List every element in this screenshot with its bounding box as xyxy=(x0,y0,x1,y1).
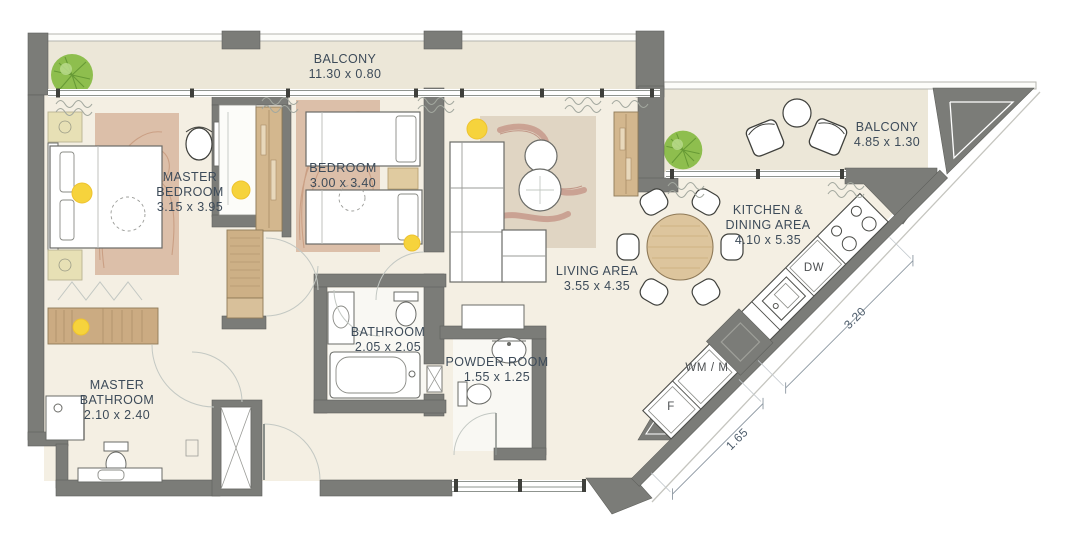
bathtub xyxy=(330,352,420,398)
room-name: BATHROOM xyxy=(80,393,155,408)
room-dims: 11.30 x 0.80 xyxy=(309,67,382,82)
balcony-table xyxy=(783,99,811,127)
room-label-master-bedroom: MASTER BEDROOM 3.15 x 3.95 xyxy=(156,170,223,215)
nightstand xyxy=(48,112,82,142)
fridge-label: F xyxy=(667,401,675,413)
wardrobe xyxy=(256,107,282,231)
room-label-bedroom: BEDROOM 3.00 x 3.40 xyxy=(309,161,376,191)
floor-plan: BALCONY 11.30 x 0.80 MASTER BEDROOM 3.15… xyxy=(0,0,1080,552)
shower xyxy=(46,396,84,440)
floor-plan-drawing xyxy=(0,0,1080,552)
room-name: BALCONY xyxy=(309,52,382,67)
service-shaft xyxy=(221,407,251,489)
room-name: POWDER ROOM xyxy=(445,355,548,370)
toilet xyxy=(458,382,491,406)
room-name: LIVING AREA xyxy=(556,264,638,279)
tv-console xyxy=(614,112,638,196)
room-dims: 3.15 x 3.95 xyxy=(156,200,223,215)
room-dims: 3.55 x 4.35 xyxy=(556,279,638,294)
room-dims: 1.55 x 1.25 xyxy=(445,370,548,385)
coffee-table xyxy=(525,140,557,172)
room-dims: 2.05 x 2.05 xyxy=(351,340,426,355)
console-table xyxy=(462,305,524,329)
room-dims: 4.10 x 5.35 xyxy=(726,233,811,248)
twin-bed xyxy=(306,185,422,244)
room-dims: 3.00 x 3.40 xyxy=(309,176,376,191)
room-label-master-bath: MASTER BATHROOM 2.10 x 2.40 xyxy=(80,378,155,423)
nightstand xyxy=(48,250,82,280)
room-name: BATHROOM xyxy=(351,325,426,340)
duct-box xyxy=(427,366,442,392)
room-label-balcony-right: BALCONY 4.85 x 1.30 xyxy=(854,120,920,150)
room-name: MASTER xyxy=(156,170,223,185)
room-label-balcony-top: BALCONY 11.30 x 0.80 xyxy=(309,52,382,82)
room-dims: 4.85 x 1.30 xyxy=(854,135,920,150)
corner-wall-triangle xyxy=(933,88,1034,174)
washer-label: WM / M xyxy=(685,362,728,374)
room-label-kitchen: KITCHEN & DINING AREA 4.10 x 5.35 xyxy=(726,203,811,248)
dishwasher-label: DW xyxy=(804,262,824,274)
room-name: BEDROOM xyxy=(156,185,223,200)
room-dims: 2.10 x 2.40 xyxy=(80,408,155,423)
plant xyxy=(664,131,703,170)
room-label-living: LIVING AREA 3.55 x 4.35 xyxy=(556,264,638,294)
master-bed xyxy=(48,143,162,251)
dresser xyxy=(48,308,158,344)
room-name: KITCHEN & xyxy=(726,203,811,218)
room-label-bathroom: BATHROOM 2.05 x 2.05 xyxy=(351,325,426,355)
twin-bed xyxy=(306,112,420,166)
hall-wardrobe xyxy=(227,230,263,318)
room-name: MASTER xyxy=(80,378,155,393)
vanity xyxy=(78,468,162,482)
room-label-powder: POWDER ROOM 1.55 x 1.25 xyxy=(445,355,548,385)
toilet xyxy=(394,292,418,326)
room-name: BEDROOM xyxy=(309,161,376,176)
nightstand xyxy=(388,168,418,189)
room-name: BALCONY xyxy=(854,120,920,135)
room-name: DINING AREA xyxy=(726,218,811,233)
